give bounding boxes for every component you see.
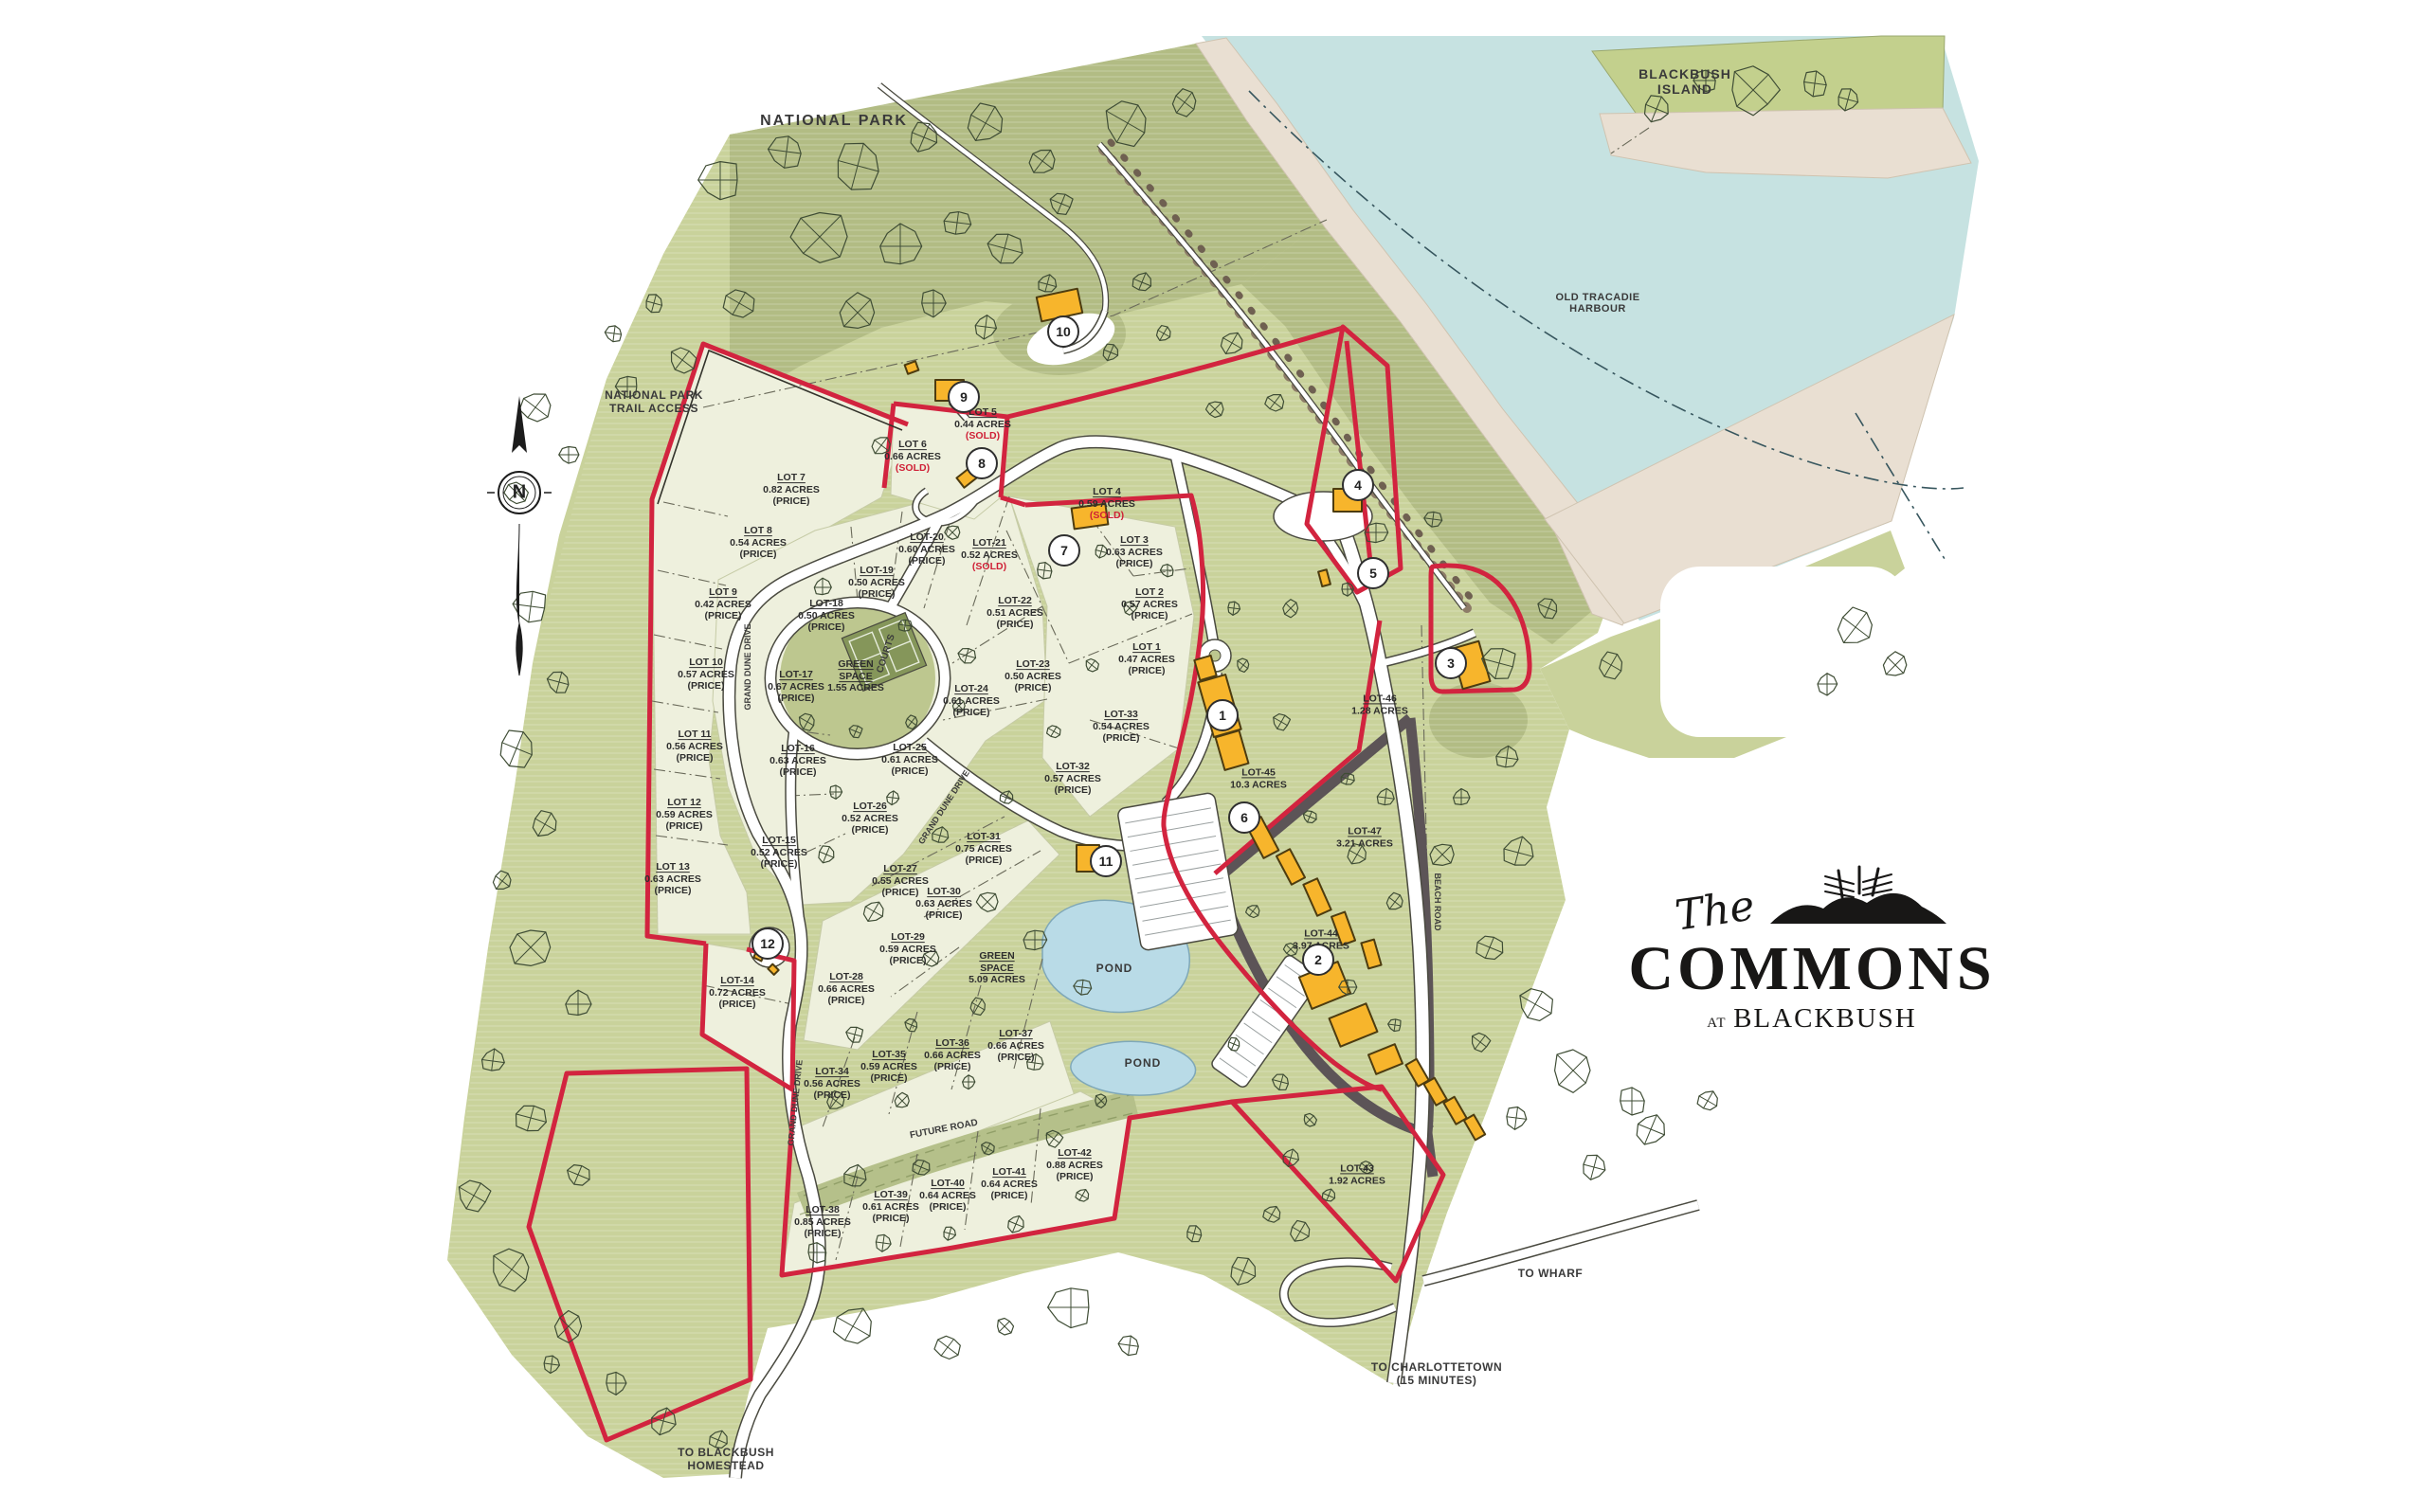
lot-label-lot-1: LOT 10.47 ACRES(PRICE): [1118, 641, 1175, 677]
lot-label-lot-8: LOT 80.54 ACRES(PRICE): [730, 525, 787, 561]
lot-label-lot-7: LOT 70.82 ACRES(PRICE): [763, 472, 820, 508]
blackbush-island: BLACKBUSHISLAND: [1638, 66, 1731, 97]
logo-place: BLACKBUSH: [1733, 1003, 1917, 1034]
lot-label-lot-21: LOT-210.52 ACRES(SOLD): [961, 537, 1018, 573]
lot-label-lot-47: LOT-473.21 ACRES: [1336, 825, 1393, 849]
marker-6: 6: [1228, 801, 1260, 834]
marker-10: 10: [1047, 315, 1079, 348]
lot-label-lot-14: LOT-140.72 ACRES(PRICE): [709, 975, 766, 1011]
labels-layer: LOT 10.47 ACRES(PRICE)LOT 20.57 ACRES(PR…: [0, 0, 2426, 1512]
old-tracadie-harbour: OLD TRACADIEHARBOUR: [1555, 292, 1639, 315]
marker-3: 3: [1435, 647, 1467, 679]
lot-label-lot-3: LOT 30.63 ACRES(PRICE): [1106, 534, 1163, 570]
green-space-central: GREENSPACE1.55 ACRES: [827, 658, 884, 694]
lot-label-lot-11: LOT 110.56 ACRES(PRICE): [666, 729, 723, 765]
lot-label-lot-42: LOT-420.88 ACRES(PRICE): [1046, 1147, 1103, 1183]
grand-dune-drive-west: GRAND DUNE DRIVE: [743, 623, 752, 710]
lot-label-lot-17: LOT-170.67 ACRES(PRICE): [768, 669, 824, 705]
lot-label-lot-12: LOT 120.59 ACRES(PRICE): [656, 797, 713, 833]
lot-label-lot-43: LOT-431.92 ACRES: [1329, 1162, 1385, 1186]
lot-label-lot-28: LOT-280.66 ACRES(PRICE): [818, 971, 875, 1007]
to-blackbush-homestead: TO BLACKBUSHHOMESTEAD: [678, 1446, 774, 1472]
lot-label-lot-22: LOT-220.51 ACRES(PRICE): [987, 595, 1043, 631]
lot-label-lot-19: LOT-190.50 ACRES(PRICE): [848, 565, 905, 601]
brand-logo: The COMMONS AT BLACKBUSH: [1622, 868, 2001, 1035]
lot-label-lot-45: LOT-4510.3 ACRES: [1230, 766, 1287, 790]
green-space-south: GREENSPACE5.09 ACRES: [969, 950, 1025, 986]
lot-label-lot-9: LOT 90.42 ACRES(PRICE): [695, 586, 751, 622]
marker-4: 4: [1342, 469, 1374, 501]
national-park-trail-access: NATIONAL PARKTRAIL ACCESS: [605, 388, 703, 415]
lot-label-lot-34: LOT-340.56 ACRES(PRICE): [804, 1066, 860, 1102]
lot-label-lot-16: LOT-160.63 ACRES(PRICE): [769, 743, 826, 779]
lot-label-lot-6: LOT 60.66 ACRES(SOLD): [884, 439, 941, 475]
lot-label-lot-2: LOT 20.57 ACRES(PRICE): [1121, 586, 1178, 622]
marker-5: 5: [1357, 557, 1389, 589]
lot-label-lot-38: LOT-380.85 ACRES(PRICE): [794, 1204, 851, 1240]
pond-1: POND: [1096, 962, 1133, 975]
lot-label-lot-24: LOT-240.61 ACRES(PRICE): [943, 683, 1000, 719]
lot-label-lot-13: LOT 130.63 ACRES(PRICE): [644, 861, 701, 897]
lot-label-lot-30: LOT-300.63 ACRES(PRICE): [915, 886, 972, 922]
lot-label-lot-20: LOT-200.60 ACRES(PRICE): [898, 531, 955, 567]
marker-2: 2: [1302, 944, 1334, 976]
lot-label-lot-25: LOT-250.61 ACRES(PRICE): [881, 742, 938, 778]
marker-8: 8: [966, 447, 998, 479]
to-charlottetown: TO CHARLOTTETOWN(15 MINUTES): [1371, 1360, 1502, 1387]
lot-label-lot-36: LOT-360.66 ACRES(PRICE): [924, 1037, 981, 1073]
lot-label-lot-31: LOT-310.75 ACRES(PRICE): [955, 831, 1012, 867]
lot-label-lot-4: LOT 40.59 ACRES(SOLD): [1078, 486, 1135, 522]
lot-label-lot-23: LOT-230.50 ACRES(PRICE): [1005, 658, 1061, 694]
lot-label-lot-46: LOT-461.28 ACRES: [1351, 693, 1408, 716]
marker-1: 1: [1206, 699, 1239, 731]
national-park: NATIONAL PARK: [760, 113, 908, 130]
pond-2: POND: [1125, 1056, 1162, 1070]
to-wharf: TO WHARF: [1518, 1267, 1583, 1280]
lot-label-lot-39: LOT-390.61 ACRES(PRICE): [862, 1189, 919, 1225]
logo-at: AT: [1707, 1016, 1726, 1031]
future-road: FUTURE ROAD: [909, 1118, 979, 1142]
lot-label-lot-26: LOT-260.52 ACRES(PRICE): [842, 801, 898, 837]
lot-label-lot-40: LOT-400.64 ACRES(PRICE): [919, 1178, 976, 1214]
lot-label-lot-32: LOT-320.57 ACRES(PRICE): [1044, 761, 1101, 797]
logo-the: The: [1673, 885, 1758, 941]
lot-label-lot-10: LOT 100.57 ACRES(PRICE): [678, 657, 734, 693]
beach-road: BEACH ROAD: [1433, 873, 1442, 930]
marker-7: 7: [1048, 534, 1080, 567]
lot-label-lot-35: LOT-350.59 ACRES(PRICE): [860, 1049, 917, 1085]
lot-label-lot-18: LOT-180.50 ACRES(PRICE): [798, 598, 855, 634]
lot-label-lot-37: LOT-370.66 ACRES(PRICE): [987, 1028, 1044, 1064]
marker-12: 12: [751, 927, 784, 960]
grand-dune-drive-south: GRAND DUNE DRIVE: [786, 1059, 804, 1146]
lot-label-lot-41: LOT-410.64 ACRES(PRICE): [981, 1166, 1038, 1202]
lot-label-lot-15: LOT-150.52 ACRES(PRICE): [751, 835, 807, 871]
logo-hills-icon: [1768, 865, 1948, 936]
lot-label-lot-29: LOT-290.59 ACRES(PRICE): [879, 931, 936, 967]
marker-9: 9: [948, 381, 980, 413]
lot-label-lot-33: LOT-330.54 ACRES(PRICE): [1093, 709, 1150, 745]
site-plan-page: { "title": "The Commons at Blackbush — S…: [0, 0, 2426, 1512]
courts: COURTS: [875, 633, 897, 675]
logo-name: COMMONS: [1622, 936, 2001, 1001]
marker-11: 11: [1090, 845, 1122, 877]
